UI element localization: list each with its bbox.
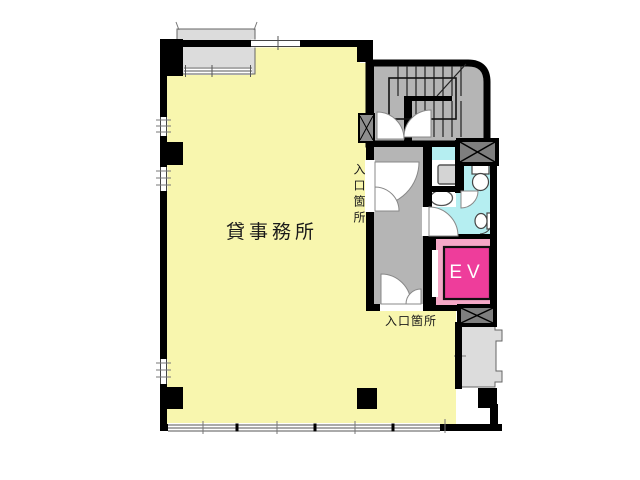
washbasin-icon — [438, 165, 457, 184]
toilet-icon — [472, 165, 489, 191]
floorplan-drawing — [0, 0, 640, 480]
entrance-label-bottom: 入口箇所 — [385, 312, 437, 329]
sink-icon — [431, 191, 453, 206]
stair-landing-wall — [404, 96, 452, 101]
elevator-label: EV — [444, 247, 490, 299]
balcony-top-left — [176, 22, 257, 77]
shaft-top — [458, 140, 497, 164]
column — [357, 40, 373, 62]
shaft-bottom — [459, 306, 495, 325]
duct-shaft — [359, 114, 374, 142]
column — [160, 39, 183, 76]
office-room-label: 貸事務所 — [226, 217, 318, 244]
column — [162, 387, 183, 409]
column — [478, 388, 497, 408]
entrance-label-side: 入口箇所 — [351, 163, 368, 227]
floorplan-canvas: 貸事務所 入口箇所 入口箇所 EV — [0, 0, 640, 480]
door-opening — [380, 304, 423, 311]
column — [357, 388, 377, 409]
elevator-door-gap — [431, 250, 438, 297]
column — [162, 142, 183, 165]
